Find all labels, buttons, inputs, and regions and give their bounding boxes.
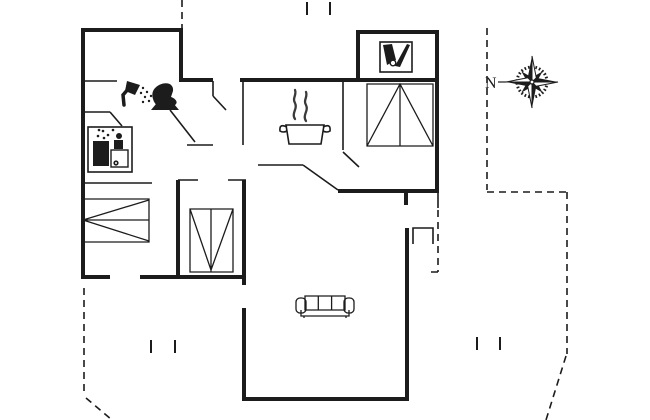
wall-living-room: [242, 180, 438, 401]
terrace-post-ticks: [151, 2, 500, 353]
figure-head: [116, 133, 122, 139]
double-bed-icon: [83, 199, 149, 242]
compass-rose-icon: N: [485, 56, 558, 108]
sofa-icon: [296, 296, 354, 318]
steam-icon: [294, 90, 307, 121]
shower-spray-dots: [140, 87, 152, 103]
bathroom-icons: [123, 81, 179, 110]
double-bed-icon-2: [367, 84, 433, 146]
terrace-dashes: [84, 0, 567, 420]
sauna-icon: [380, 42, 412, 72]
sauna-icon-right-shape: [395, 44, 410, 67]
bed-left-double: [83, 199, 149, 242]
shower-head: [125, 81, 140, 95]
sauna-icon-ring: [390, 60, 396, 66]
compass-north-label: N: [485, 75, 497, 92]
sofa-cushions: [305, 296, 345, 310]
washer-body: [93, 141, 109, 166]
bed-topright-double: [367, 84, 433, 146]
sofa-base: [301, 310, 349, 318]
washing-machine-icon: [88, 127, 132, 172]
terrace-dashed-boundary: [84, 0, 567, 420]
dryer-body: [111, 150, 128, 167]
shower-icon: [123, 81, 152, 105]
kitchen-stove-icon: [280, 90, 330, 144]
toilet-icon: [151, 83, 179, 110]
washer-spray-dots: [97, 129, 115, 140]
floor-plan-page: N: [0, 0, 650, 420]
bed-middle-single: [190, 209, 233, 272]
single-bed-icon: [190, 209, 233, 272]
cooking-pot-icon: [286, 125, 324, 144]
floor-plan: N: [0, 0, 650, 420]
compass-hub: [530, 80, 534, 84]
figure-body: [114, 140, 123, 149]
tick-marks: [151, 2, 500, 353]
